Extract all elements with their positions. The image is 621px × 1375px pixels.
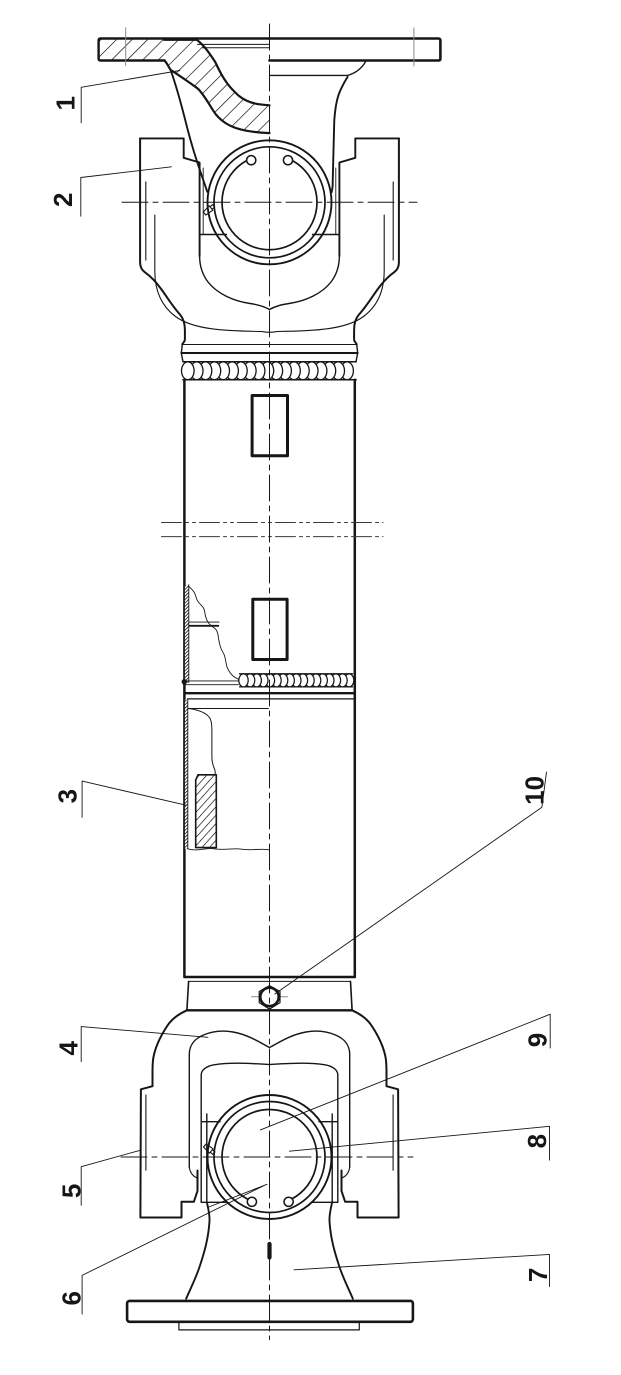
svg-text:6: 6 (57, 1291, 87, 1305)
svg-text:2: 2 (48, 193, 78, 207)
svg-text:7: 7 (523, 1268, 553, 1282)
svg-text:3: 3 (53, 789, 83, 803)
svg-text:10: 10 (520, 776, 550, 805)
svg-text:4: 4 (54, 1041, 84, 1056)
svg-text:1: 1 (51, 96, 81, 110)
svg-text:8: 8 (522, 1134, 552, 1148)
svg-text:5: 5 (57, 1184, 87, 1198)
svg-text:9: 9 (523, 1033, 553, 1047)
